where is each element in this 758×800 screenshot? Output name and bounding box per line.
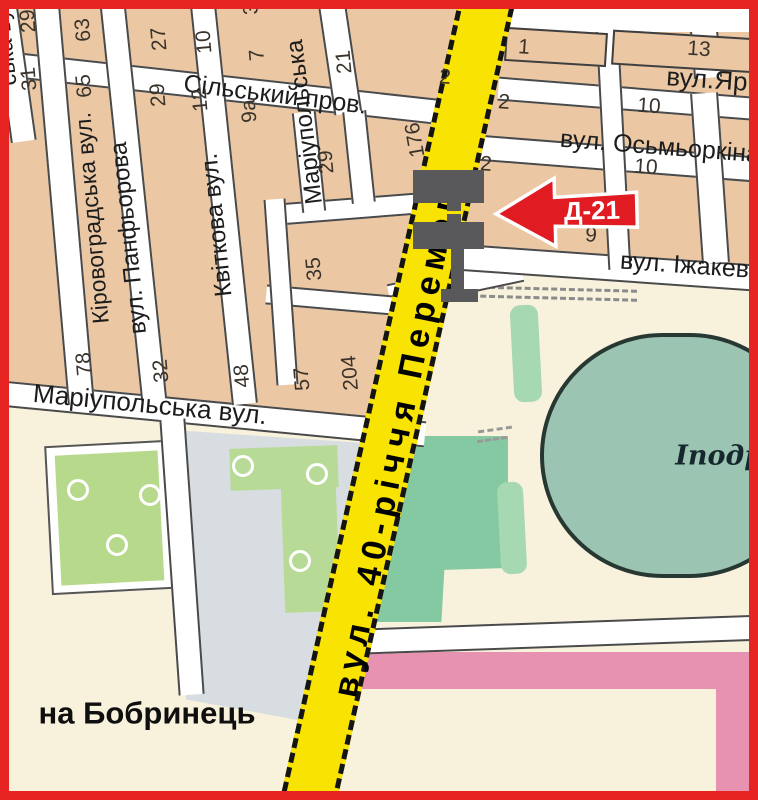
tree-icon <box>306 463 328 485</box>
pink-zone-top <box>340 652 758 689</box>
dashed-path <box>478 426 512 434</box>
house-number: 2 <box>438 66 451 88</box>
tree-icon <box>67 479 89 501</box>
house-number: 63 <box>72 17 95 42</box>
tree-icon <box>289 550 311 572</box>
tree-icon <box>139 484 161 506</box>
house-number: 35 <box>303 256 326 281</box>
house-number: 29 <box>315 149 338 174</box>
tree-icon <box>106 534 128 556</box>
house-number: 57 <box>291 366 314 391</box>
house-number: 31 <box>18 66 41 91</box>
house-number: 78 <box>73 351 96 376</box>
billboard-panel-top <box>413 170 484 203</box>
house-number: 204 <box>338 355 362 392</box>
house-number: 2 <box>497 91 510 113</box>
house-number: 32 <box>150 358 173 383</box>
pink-zone-right <box>716 686 749 800</box>
tree-strip <box>509 304 542 402</box>
billboard-post-joint <box>447 203 461 211</box>
house-number: 27 <box>148 26 171 51</box>
billboard-panel-bottom <box>413 222 484 249</box>
house-number: 176 <box>402 121 429 159</box>
house-number: 48 <box>231 363 254 388</box>
house-number: 1 <box>517 36 530 58</box>
billboard-base <box>441 289 478 302</box>
label-ipodrom: Іподром <box>675 443 758 470</box>
house-number: 7 <box>246 48 268 61</box>
house-number: 21 <box>333 49 356 74</box>
house-number: 65 <box>73 73 96 98</box>
city-map: вул. 40-річчя ПеремогиСільський пров.Кір… <box>0 0 758 800</box>
label-na-bobrynets: на Бобринець <box>38 698 255 729</box>
house-number: 9а <box>238 98 261 123</box>
billboard-pole <box>451 249 464 291</box>
house-number: 10 <box>637 95 662 118</box>
house-number: 12 <box>189 87 212 112</box>
park-green <box>55 450 165 585</box>
label-yar: вул.Яр <box>666 63 749 95</box>
tree-icon <box>232 455 254 477</box>
house-number: 29 <box>147 82 170 107</box>
house-number: 13 <box>687 38 712 61</box>
billboard-id-badge: Д-21 <box>564 197 621 224</box>
house-number: 10 <box>193 29 216 54</box>
pointer-arrow: Д-21 <box>479 166 656 263</box>
house-number: 3 <box>240 2 262 15</box>
house-number: 29 <box>17 8 40 33</box>
tree-strip <box>497 481 528 574</box>
